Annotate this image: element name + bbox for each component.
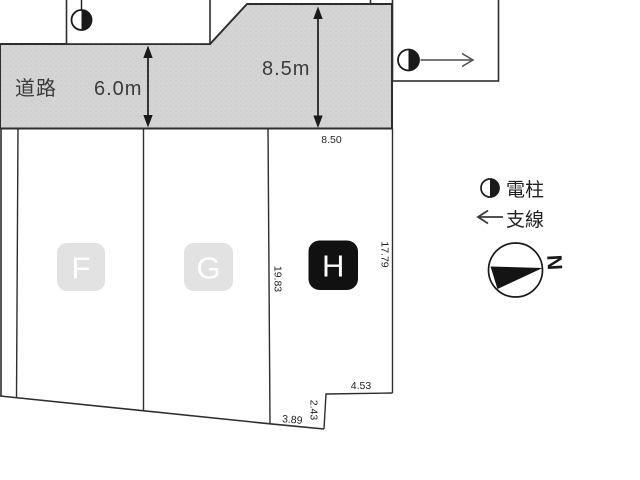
dim-h-frontage: 8.50 <box>321 134 342 146</box>
road-label: 道路 <box>15 77 57 100</box>
utility-pole-icon <box>398 50 419 71</box>
dim-h-bottom-edge: 3.89 <box>282 413 304 427</box>
dim-h-bottom-step-height: 2.43 <box>308 400 320 421</box>
plot-boundary-1 <box>17 129 19 399</box>
bottom-boundary <box>0 396 324 429</box>
road-width-label: 6.0m <box>94 78 142 100</box>
utility-pole-icon <box>72 10 92 30</box>
plot-h-label: H <box>322 249 344 284</box>
dim-h-bottom-step-width: 4.53 <box>351 380 372 392</box>
plan-canvas: 道路 6.0m 8.5m F G H 8.50 19.83 17.79 4.53… <box>0 0 640 480</box>
plot-h-bottom-step <box>324 393 393 429</box>
plot-boundary-g-h <box>268 129 270 424</box>
plot-f-label: F <box>72 251 91 286</box>
legend-guy-wire-icon <box>478 211 503 224</box>
legend-pole-icon <box>481 179 499 197</box>
road-upper-width-label: 8.5m <box>262 58 310 80</box>
dim-h-right-depth: 17.79 <box>379 241 391 267</box>
plot-f-badge: F <box>57 243 105 291</box>
dim-h-left-depth: 19.83 <box>272 266 284 292</box>
plot-g-badge: G <box>184 243 233 291</box>
plot-g-label: G <box>196 251 220 286</box>
plot-h-badge: H <box>309 241 359 291</box>
legend-guy-wire-label: 支線 <box>506 209 544 231</box>
north-compass-icon: N <box>489 243 566 297</box>
north-label: N <box>542 254 566 270</box>
site-plan-diagram: 道路 6.0m 8.5m F G H 8.50 19.83 17.79 4.53… <box>0 0 640 480</box>
legend-pole-label: 電柱 <box>506 179 544 201</box>
